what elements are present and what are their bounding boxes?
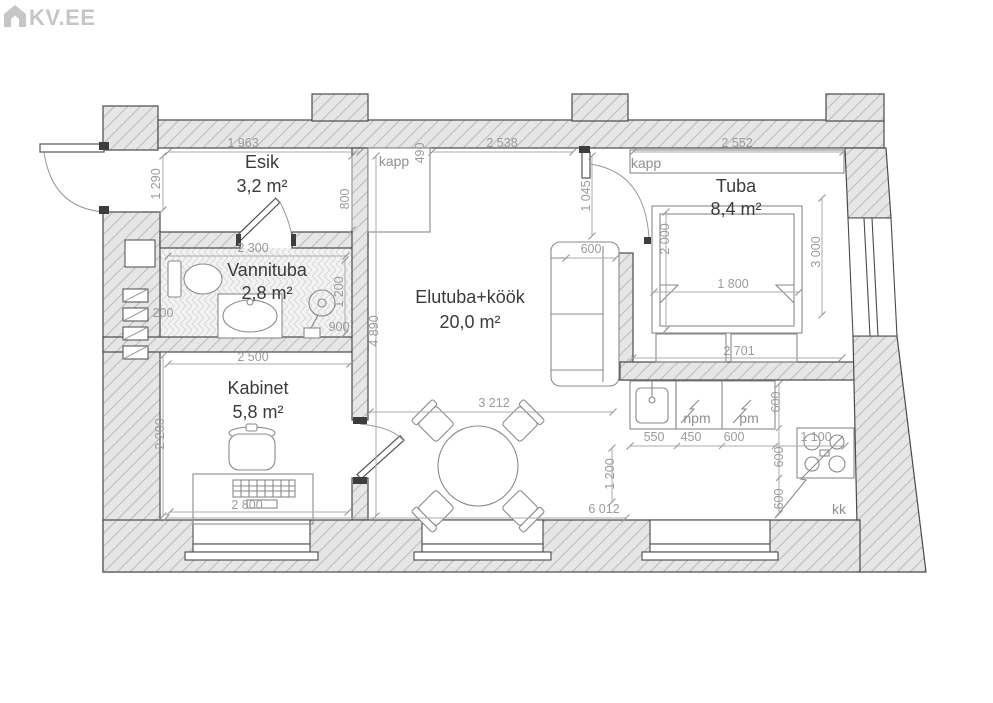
bed xyxy=(652,206,802,333)
dimension-label: 600 xyxy=(769,392,783,413)
dimension-label: 2 552 xyxy=(721,136,752,150)
window-3 xyxy=(642,520,778,560)
dimension-label: 3 212 xyxy=(478,396,509,410)
office-chair xyxy=(229,424,275,470)
dimension-label: 1 963 xyxy=(227,136,258,150)
wardrobe-right xyxy=(630,150,844,173)
dimension-label: 2 200 xyxy=(153,418,167,449)
wall-pillar-top-2 xyxy=(572,94,628,121)
fixture-label: kk xyxy=(832,501,847,517)
room-area: 3,2 m² xyxy=(236,176,287,196)
fixture-label: kapp xyxy=(379,153,410,169)
dimension-label: 2 538 xyxy=(486,136,517,150)
wall-pillar-top-3 xyxy=(826,94,884,121)
room-name: Vannituba xyxy=(227,260,308,280)
dimension-label: 1 800 xyxy=(717,277,748,291)
fixture-label: pm xyxy=(739,410,758,426)
dimension-label: 2 701 xyxy=(723,344,754,358)
dimension-label: 1 290 xyxy=(149,168,163,199)
dimension-label: 800 xyxy=(338,189,352,210)
floorplan-page: KV.EE xyxy=(0,0,993,703)
kvee-logo: KV.EE xyxy=(4,5,96,30)
wall-top-band xyxy=(158,120,884,148)
dimension-label: 600 xyxy=(724,430,745,444)
wall-right-upper xyxy=(845,148,891,218)
room-name: Kabinet xyxy=(227,378,288,398)
dimension-label: 2 000 xyxy=(658,223,672,254)
wall-esik-vannituba-left xyxy=(160,232,240,248)
dimension-label: 490 xyxy=(413,143,427,164)
dimension-label: 1 200 xyxy=(332,276,346,307)
dimension-label: 4 890 xyxy=(367,315,381,346)
dimension-label: 600 xyxy=(581,242,602,256)
fixture-label: npm xyxy=(683,410,710,426)
dimension-label: 450 xyxy=(681,430,702,444)
toilet xyxy=(168,261,222,297)
wall-tuba-kitchen xyxy=(620,362,858,380)
dimension-label: 6 012 xyxy=(588,502,619,516)
dimension-label: 600 xyxy=(772,447,786,468)
dimension-label: 550 xyxy=(644,430,665,444)
window-1 xyxy=(185,520,318,560)
wall-right-lower xyxy=(853,336,926,572)
wall-entrance-pillar xyxy=(103,106,158,150)
shaft-box xyxy=(125,240,155,267)
sofa xyxy=(551,242,619,386)
room-area: 8,4 m² xyxy=(710,199,761,219)
dimension-label: 2 800 xyxy=(231,498,262,512)
wall-kabinet-elutuba-upper xyxy=(352,148,368,420)
entrance-door xyxy=(40,142,109,214)
dining-table xyxy=(438,426,518,506)
house-icon xyxy=(4,5,26,27)
room-name: Esik xyxy=(245,152,280,172)
fixture-label: kapp xyxy=(631,155,662,171)
window-right xyxy=(848,218,897,336)
dining-chair xyxy=(411,399,456,444)
room-area: 5,8 m² xyxy=(232,402,283,422)
dimension-label: 200 xyxy=(153,306,174,320)
dimension-label: 900 xyxy=(329,320,350,334)
room-area: 20,0 m² xyxy=(439,312,500,332)
kabinet-door xyxy=(353,417,404,484)
dimension-label: 1 200 xyxy=(603,458,617,489)
dimension-label: 2 500 xyxy=(237,350,268,364)
dimension-label: 600 xyxy=(772,489,786,510)
dimension-label: 1 045 xyxy=(579,180,593,211)
kitchen-sink xyxy=(630,381,676,429)
wall-kabinet-elutuba-lower xyxy=(352,478,368,520)
bathroom-door xyxy=(236,198,296,246)
dimension-label: 3 000 xyxy=(809,236,823,267)
room-name: Elutuba+köök xyxy=(415,287,526,307)
dimension-label: 2 300 xyxy=(237,241,268,255)
dimension-label: 1 100 xyxy=(800,430,831,444)
room-area: 2,8 m² xyxy=(241,283,292,303)
wall-pillar-top-1 xyxy=(312,94,368,121)
logo-text: KV.EE xyxy=(29,5,96,30)
room-name: Tuba xyxy=(716,176,757,196)
floorplan-drawing: KV.EE xyxy=(0,0,993,703)
